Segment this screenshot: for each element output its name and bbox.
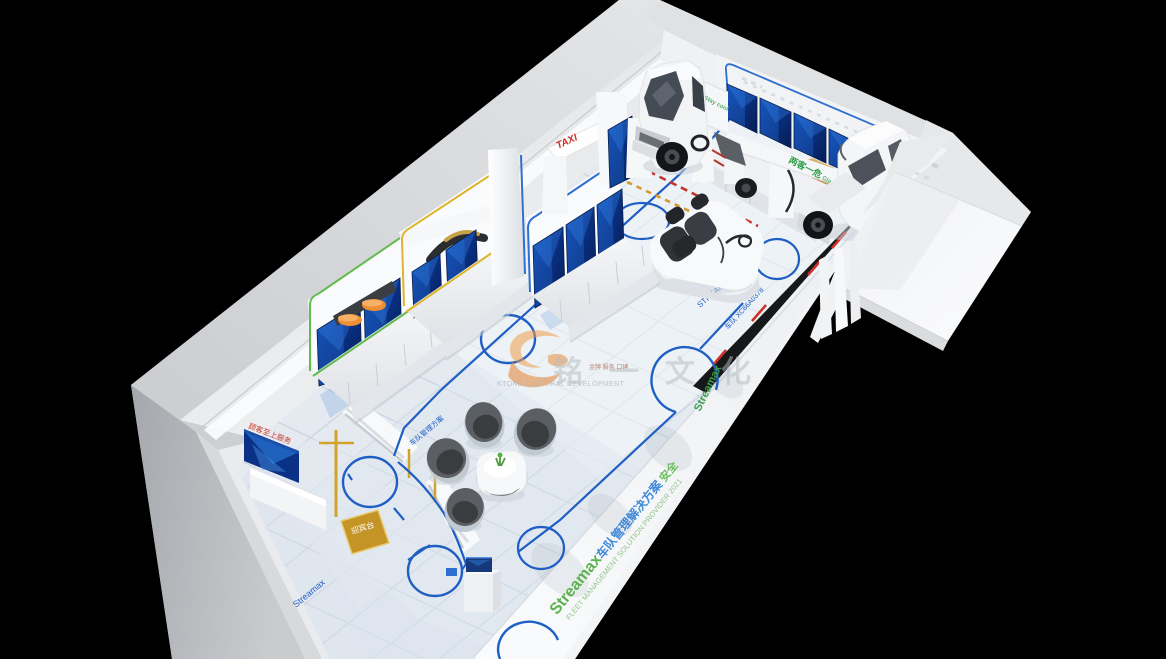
svg-text:KTONE CULTURAL DEVELOPMENT: KTONE CULTURAL DEVELOPMENT <box>497 381 625 388</box>
svg-text:金牌 服务 口碑: 金牌 服务 口碑 <box>589 363 628 371</box>
